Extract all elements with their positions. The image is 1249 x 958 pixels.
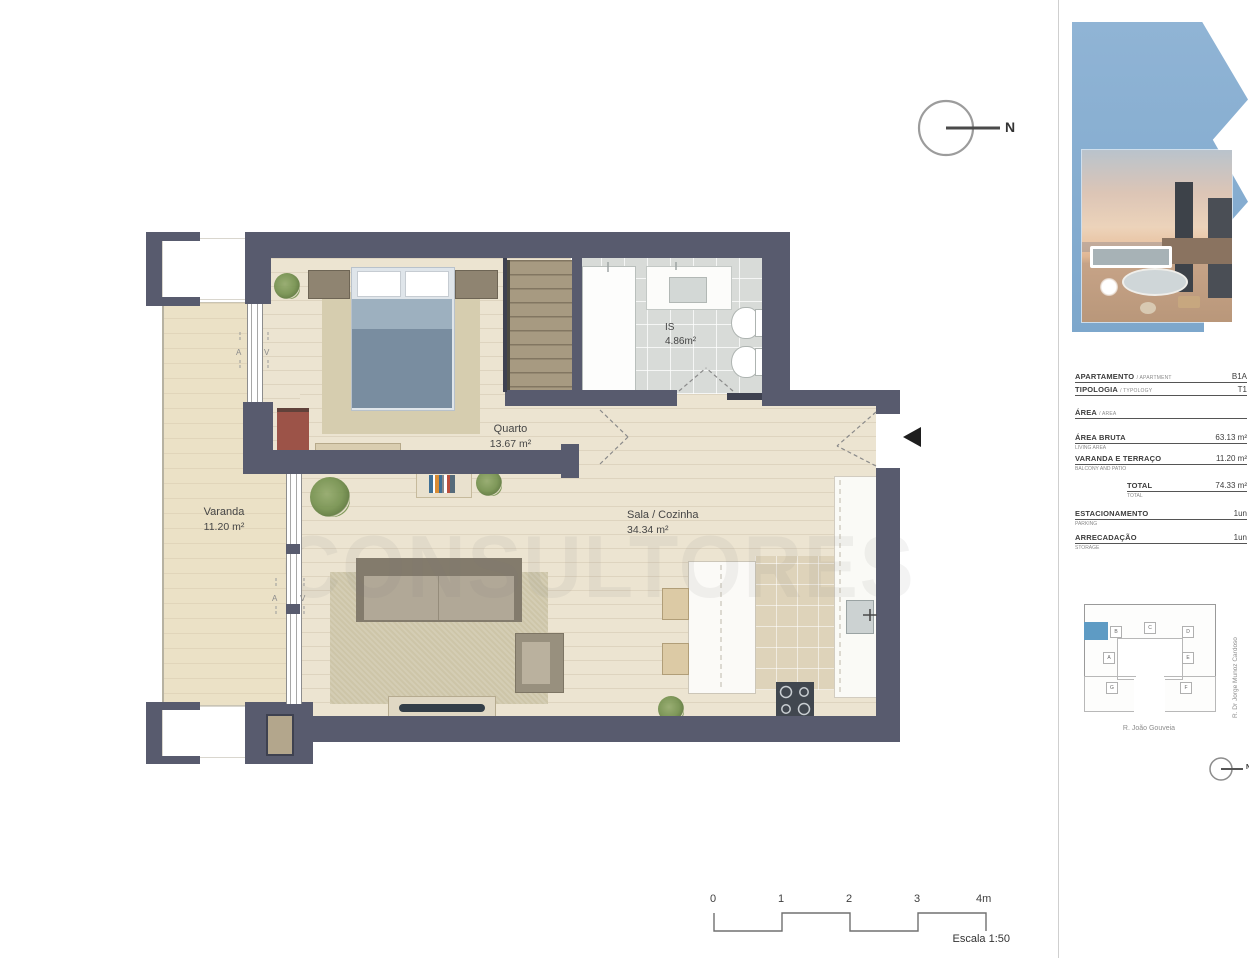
- site-unit-c: C: [1144, 622, 1156, 634]
- wall-top: [250, 232, 790, 258]
- label-quarto: Quarto 13.67 m²: [458, 422, 563, 451]
- floorplan-page: CONSULTORES: [0, 0, 1249, 958]
- row-value: 63.13 m²: [1215, 433, 1247, 442]
- wall-bracket-bottomleft-cap2: [146, 756, 200, 764]
- render-table: [1140, 302, 1156, 314]
- wall-entry-top: [762, 390, 900, 406]
- wall-bathroom-bottom: [505, 390, 677, 406]
- info-row-area-bruta: ÁREA BRUTA 63.13 m² LIVING AREA: [1075, 433, 1247, 451]
- label-varanda: Varanda 11.20 m²: [178, 505, 270, 534]
- wall-topleft-block: [245, 232, 271, 304]
- scale-tick-4: 4m: [976, 893, 991, 905]
- row-label: VARANDA E TERRAÇO: [1075, 454, 1161, 463]
- info-row-estacionamento: ESTACIONAMENTO 1un PARKING: [1075, 509, 1247, 527]
- site-unit-g: G: [1106, 682, 1118, 694]
- row-label-sub: / TYPOLOGY: [1120, 388, 1152, 394]
- bed-sheet: [352, 299, 452, 329]
- render-pool-rim: [1090, 246, 1172, 268]
- armchair: [515, 633, 564, 693]
- scale-bar: [714, 913, 986, 931]
- living-window: [286, 474, 302, 704]
- window-mullion-1: [286, 544, 300, 554]
- row-value: 1un: [1234, 509, 1247, 518]
- render-spa: [1122, 268, 1188, 296]
- wall-bathroom-left: [572, 258, 582, 394]
- shaft-insert: [266, 714, 294, 756]
- row-value: T1: [1238, 385, 1247, 394]
- wall-bracket-topleft-cap2: [146, 297, 200, 306]
- row-sublabel: STORAGE: [1075, 545, 1247, 551]
- wardrobe: [507, 260, 574, 392]
- plant-bedroom: [274, 273, 300, 299]
- info-row-apartamento: APARTAMENTO / APARTMENT B1A: [1075, 372, 1247, 383]
- row-value: B1A: [1232, 372, 1247, 381]
- row-value: 1un: [1234, 533, 1247, 542]
- wall-right: [876, 468, 900, 742]
- sidebar-divider-line: [1058, 0, 1059, 958]
- row-label: TIPOLOGIA: [1075, 385, 1118, 394]
- nightstand-left: [308, 270, 350, 299]
- row-sublabel: PARKING: [1075, 521, 1247, 527]
- room-name: Varanda: [178, 505, 270, 520]
- row-label-sub: / AREA: [1099, 411, 1116, 417]
- row-sublabel: BALCONY AND PATIO: [1075, 466, 1247, 472]
- site-unit-a: A: [1103, 652, 1115, 664]
- sideboard-shelf: [416, 470, 472, 498]
- row-label: ÁREA BRUTA: [1075, 433, 1126, 442]
- room-area: 34.34 m²: [627, 523, 747, 538]
- bed: [351, 267, 455, 411]
- scale-tick-1: 1: [778, 893, 784, 905]
- watermark: CONSULTORES: [282, 516, 915, 618]
- nightstand-right: [455, 270, 498, 299]
- render-lamp: [1100, 278, 1118, 296]
- row-sublabel: LIVING AREA: [1075, 445, 1247, 451]
- row-label: APARTAMENTO: [1075, 372, 1134, 381]
- wall-bracket-topleft: [146, 232, 162, 306]
- room-name: Quarto: [458, 422, 563, 437]
- row-label: ARRECADAÇÃO: [1075, 533, 1137, 542]
- site-courtyard-opening: [1134, 677, 1165, 712]
- bed-spread: [352, 329, 452, 408]
- neighbor-balcony-bottom: [162, 706, 247, 758]
- site-unit-f: F: [1180, 682, 1192, 694]
- entry-marker-triangle: [903, 427, 921, 447]
- scale-tick-3: 3: [914, 893, 920, 905]
- street-label-bottom: R. João Gouveia: [1084, 725, 1214, 732]
- wall-divider-cap: [561, 444, 579, 478]
- row-value: 11.20 m²: [1216, 454, 1247, 463]
- wall-bathroom-right: [762, 258, 790, 394]
- scale-caption: Escala 1:50: [920, 933, 1010, 945]
- bedroom-window: [247, 304, 263, 402]
- label-is: IS 4.86m²: [665, 321, 725, 348]
- unit-info-table: APARTAMENTO / APARTMENT B1A TIPOLOGIA / …: [1075, 372, 1247, 551]
- wall-bracket-bottomleft-cap1: [146, 702, 200, 710]
- render-lounger-1: [1178, 296, 1200, 308]
- room-area: 11.20 m²: [178, 520, 270, 535]
- row-label: ESTACIONAMENTO: [1075, 509, 1148, 518]
- scale-tick-2: 2: [846, 893, 852, 905]
- info-row-total: TOTAL 74.33 m² TOTAL: [1075, 481, 1247, 499]
- shower: [582, 266, 636, 392]
- sink-basin: [669, 277, 707, 303]
- scale-tick-0: 0: [710, 893, 716, 905]
- render-pool-water: [1093, 249, 1169, 265]
- mini-north-circle: [1210, 758, 1232, 780]
- wardrobe-divider-line: [503, 258, 507, 392]
- wall-bracket-topleft-cap1: [146, 232, 200, 241]
- site-unit-e: E: [1182, 652, 1194, 664]
- wall-divider: [243, 450, 579, 474]
- wall-bottom: [300, 716, 900, 742]
- site-highlighted-unit: [1084, 622, 1108, 640]
- armchair-cushion: [522, 642, 550, 684]
- row-label: TOTAL: [1127, 481, 1152, 490]
- info-row-arrecadacao: ARRECADAÇÃO 1un STORAGE: [1075, 533, 1247, 551]
- row-label: ÁREA: [1075, 408, 1097, 417]
- row-label-sub: / APARTMENT: [1137, 375, 1172, 381]
- red-chair: [277, 408, 309, 456]
- window-mullion-2: [286, 604, 300, 614]
- tv: [399, 704, 485, 712]
- row-sublabel: TOTAL: [1127, 493, 1247, 499]
- north-arrow-circle: [919, 101, 973, 155]
- info-row-area-header: ÁREA / AREA: [1075, 408, 1247, 419]
- room-area: 4.86m²: [665, 335, 725, 349]
- render-building-mid: [1162, 238, 1232, 264]
- bathroom-door-threshold: [727, 393, 762, 400]
- north-label: N: [1005, 119, 1015, 135]
- info-row-tipologia: TIPOLOGIA / TYPOLOGY T1: [1075, 385, 1247, 396]
- room-name: Sala / Cozinha: [627, 508, 747, 523]
- pillow-left: [357, 271, 401, 297]
- site-courtyard: [1117, 638, 1183, 680]
- site-unit-b: B: [1110, 626, 1122, 638]
- wall-right-upper: [876, 406, 900, 414]
- room-name: IS: [665, 321, 725, 335]
- label-sala-cozinha: Sala / Cozinha 34.34 m²: [627, 508, 747, 537]
- info-row-varanda-terraco: VARANDA E TERRAÇO 11.20 m² BALCONY AND P…: [1075, 454, 1247, 472]
- pillow-right: [405, 271, 449, 297]
- street-label-right: R. Dr Jorge Munoz Cardoso: [1232, 588, 1239, 718]
- sink-counter: [646, 266, 732, 310]
- row-value: 74.33 m²: [1215, 481, 1247, 490]
- stool-bottom: [662, 643, 689, 675]
- books: [429, 475, 455, 493]
- stove: [776, 682, 814, 718]
- wall-bottomleft-block: [245, 702, 313, 764]
- building-render-photo: [1082, 150, 1232, 322]
- room-area: 13.67 m²: [458, 437, 563, 452]
- site-unit-d: D: [1182, 626, 1194, 638]
- neighbor-balcony-top: [162, 238, 247, 300]
- plant-living: [310, 477, 350, 517]
- wall-bracket-bottomleft: [146, 702, 162, 764]
